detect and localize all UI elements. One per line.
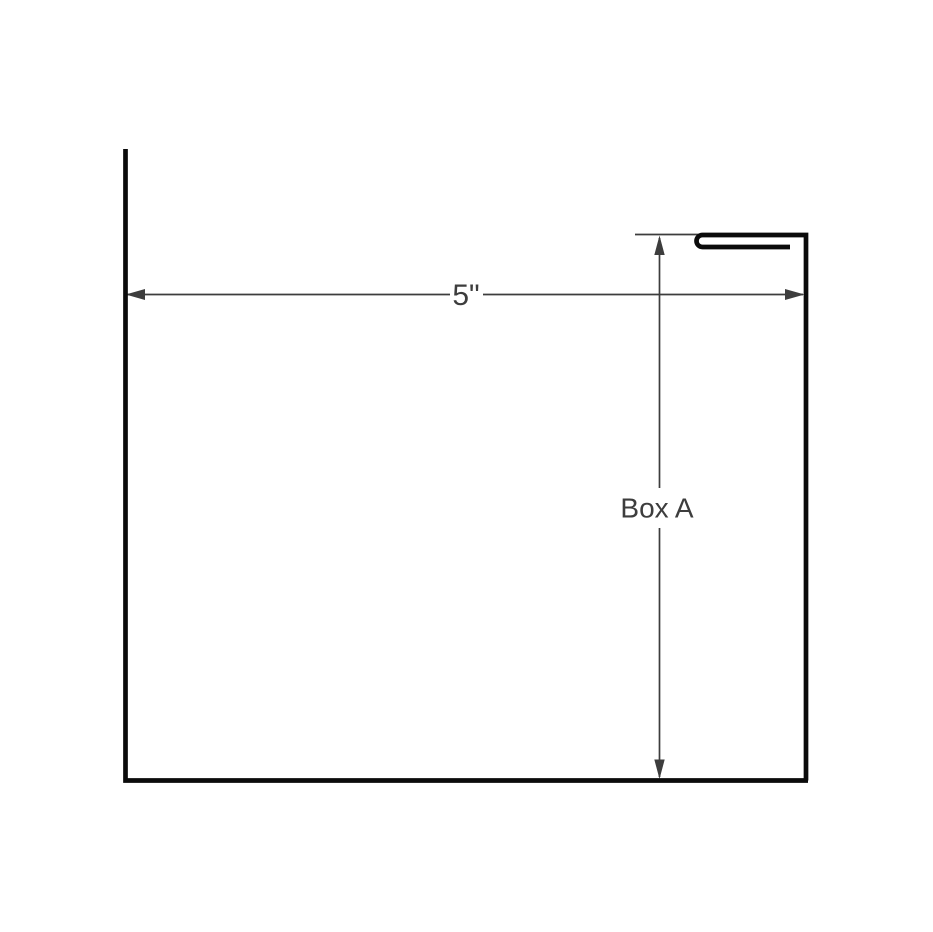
width-arrowhead-right-icon: [785, 289, 805, 300]
width-dimension-label: 5": [452, 279, 479, 312]
height-arrowhead-up-icon: [654, 236, 664, 256]
box-right-wall-and-hem-line: [697, 235, 807, 781]
height-arrowhead-down-icon: [654, 760, 664, 780]
part-name-label: Box A: [620, 493, 693, 524]
width-arrowhead-left-icon: [126, 289, 146, 300]
drawing-canvas: 5" Box A: [0, 0, 933, 932]
box-left-wall-and-bottom-line: [126, 149, 809, 781]
technical-drawing: 5" Box A: [0, 0, 933, 932]
